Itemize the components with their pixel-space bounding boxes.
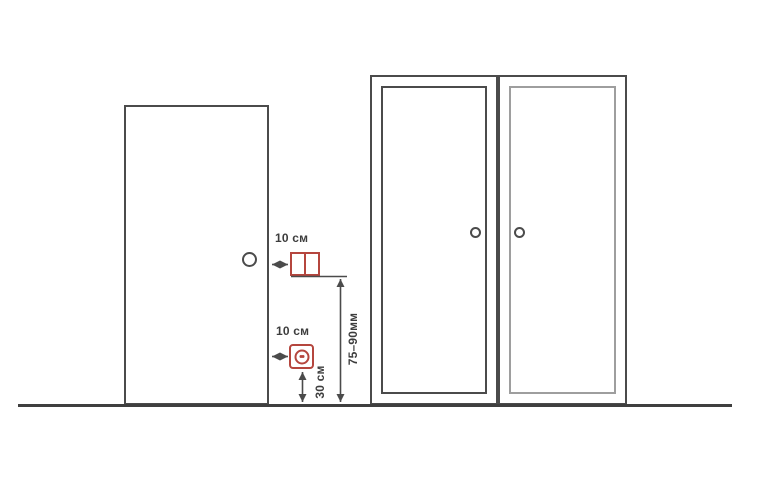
outlet-pin: [301, 355, 304, 358]
floor-line: [18, 404, 732, 407]
outlet-height-label: 30 см: [313, 365, 327, 398]
single-door: [124, 105, 269, 405]
door-knob-icon: [514, 227, 525, 238]
power-outlet-icon: [289, 344, 314, 369]
door-knob-icon: [470, 227, 481, 238]
door-panel-inset: [381, 86, 487, 394]
switch-divider: [304, 254, 306, 274]
outlet-offset-label: 10 см: [276, 324, 309, 338]
double-door-right-panel: [498, 75, 627, 405]
door-panel-inset: [509, 86, 616, 394]
door-knob-icon: [242, 252, 257, 267]
outlet-socket-circle: [294, 349, 309, 364]
switch-height-label: 75–90мм: [346, 313, 360, 366]
diagram-canvas: 10 см 10 см 30 см 75–90мм: [0, 0, 758, 488]
switch-offset-label: 10 см: [275, 231, 308, 245]
light-switch-icon: [290, 252, 320, 276]
double-door-left-panel: [370, 75, 498, 405]
